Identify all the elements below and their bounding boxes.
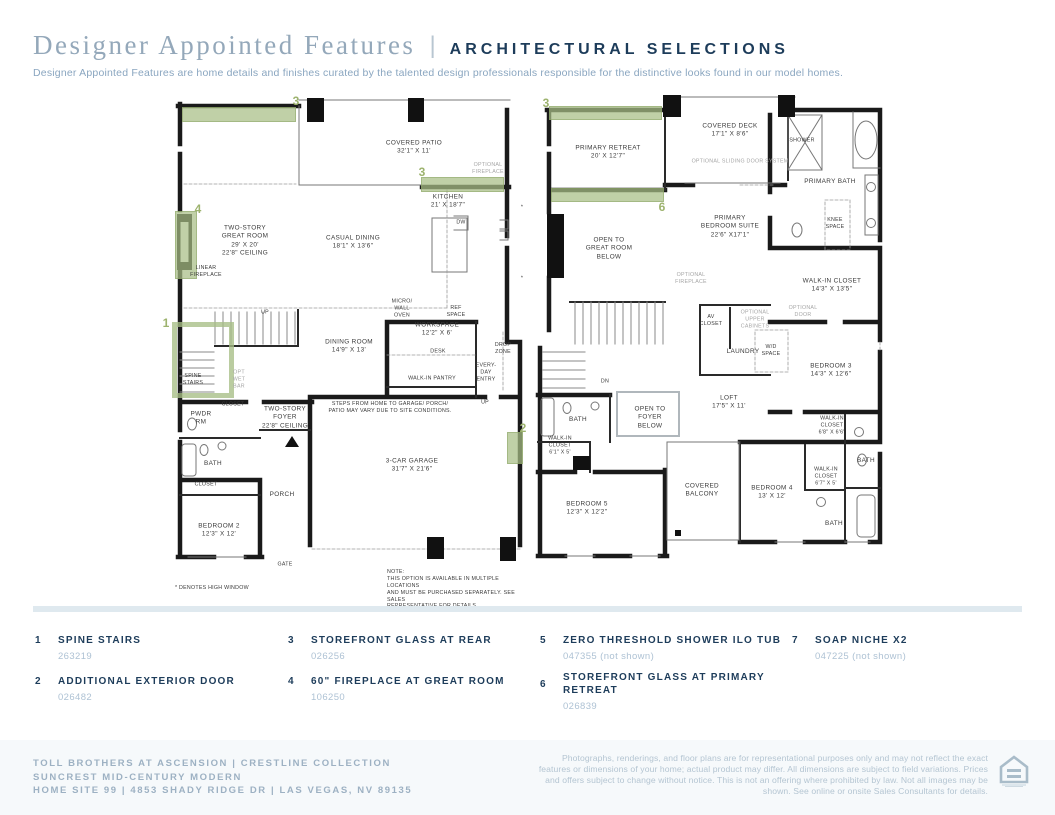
legend-title: ADDITIONAL EXTERIOR DOOR [58,675,235,688]
room-label: LAUNDRY [727,348,760,356]
room-label: PORCH [270,491,295,499]
room-label: SPINE STAIRS [183,373,203,387]
legend-item: 3 STOREFRONT GLASS AT REAR 026256 [288,634,492,662]
legend-code: 047225 (not shown) [815,651,908,662]
community-info: TOLL BROTHERS AT ASCENSION | CRESTLINE C… [33,757,412,798]
legend-number: 4 [288,675,307,703]
legend-title: STOREFRONT GLASS AT REAR [311,634,492,647]
room-label: OPTIONAL SLIDING DOOR SYSTEM [692,159,789,166]
room-label: COVERED DECK 17'1" X 8'6" [702,123,757,140]
room-label: DINING ROOM 14'9" X 13' [325,339,373,356]
callout-number: 3 [419,165,426,179]
legend-item: 1 SPINE STAIRS 263219 [35,634,141,662]
room-label: WALK-IN CLOSET 6'7" X 5' [814,467,838,488]
room-label: UP [261,310,269,317]
room-label: WALK-IN CLOSET 6'8" X 6'6" [819,416,846,437]
highlight-storefront-rear-kitchen [422,178,503,191]
room-label: LINEAR FIREPLACE [190,265,222,279]
room-label: WALK-IN PANTRY [408,376,456,383]
legend-item: 6 STOREFRONT GLASS AT PRIMARY RETREAT 02… [540,671,765,712]
room-label: WORKSPACE 12'2" X 6' [415,322,459,339]
room-label: OPTIONAL DOOR [789,305,818,319]
legend-number: 6 [540,671,559,712]
callout-number: 3 [293,94,300,108]
room-label: OPTIONAL FIREPLACE [472,162,504,176]
room-label: BEDROOM 5 12'3" X 12'2" [566,501,608,518]
room-label: OPEN TO FOYER BELOW [635,406,666,431]
plan-note: NOTE: THIS OPTION IS AVAILABLE IN MULTIP… [387,569,530,610]
equal-housing-logo [998,755,1030,787]
room-label: OPT WET BAR [233,370,246,391]
room-label: MICRO/ WALL OVEN [392,299,413,320]
legend-number: 5 [540,634,559,662]
room-label: PRIMARY BEDROOM SUITE 22'6" X17'1" [701,215,759,240]
room-label: SHOWER [789,138,814,145]
callout-number: 1 [163,316,170,330]
callout-number: 3 [543,96,550,110]
room-label: DW [456,220,465,227]
highlight-storefront-rear-retreat [550,107,661,119]
room-label: DESK [430,349,445,356]
legend-item: 5 ZERO THRESHOLD SHOWER ILO TUB 047355 (… [540,634,781,662]
room-label: EVERY- DAY ENTRY [476,363,497,384]
room-label: TWO-STORY FOYER 22'8" CEILING [262,406,308,431]
legend-title: STOREFRONT GLASS AT PRIMARY RETREAT [563,671,765,697]
second-floor-plan: 3 6 PRIMARY RETREAT 20' X 12'7" COVERED … [535,90,895,595]
legend-code: 047355 (not shown) [563,651,781,662]
footer-disclaimer: Photographs, renderings, and floor plans… [530,753,988,797]
first-floor-plan: 3 3 4 1 2 COVERED PATIO 32'1" X 11' OPTI… [158,90,530,605]
legend-number: 7 [792,634,811,662]
room-label: BEDROOM 3 14'3" X 12'6" [810,363,852,380]
room-label: CLOSET [195,482,218,489]
page-title: Designer Appointed Features [33,30,415,61]
room-label: DROP ZONE [495,342,511,356]
legend-number: 1 [35,634,54,662]
high-window-marker: * [521,205,523,212]
title-separator: | [429,32,435,60]
room-label: COVERED PATIO 32'1" X 11' [386,140,442,157]
plan-footnote: * DENOTES HIGH WINDOW [175,585,249,592]
legend-number: 2 [35,675,54,703]
room-label: CLOSET [222,402,245,409]
room-label: DN [601,379,609,386]
legend-title: 60" FIREPLACE AT GREAT ROOM [311,675,505,688]
callout-number: 2 [520,421,527,435]
room-label: BATH [857,457,875,465]
legend-code: 026839 [563,701,765,712]
room-label: COVERED BALCONY [685,483,719,500]
room-label: W/D SPACE [762,344,781,358]
page-header: Designer Appointed Features | ARCHITECTU… [33,30,1023,79]
room-label: KNEE SPACE [826,217,845,231]
room-label: OPTIONAL UPPER CABINETS [741,310,770,331]
room-label: BATH [204,460,222,468]
room-label: TWO-STORY GREAT ROOM 29' X 20' 22'8" CEI… [222,224,269,257]
room-label: BEDROOM 2 12'3" X 12' [198,523,240,540]
room-label: PRIMARY RETREAT 20' X 12'7" [575,145,640,162]
page-description: Designer Appointed Features are home det… [33,67,1023,79]
legend-item: 4 60" FIREPLACE AT GREAT ROOM 106250 [288,675,505,703]
legend-title: SOAP NICHE X2 [815,634,908,647]
room-label: WALK-IN CLOSET 6'1" X 5' [548,436,572,457]
highlight-additional-exterior-door [508,433,522,463]
room-label: AV CLOSET [700,314,723,328]
room-label: KITCHEN 21' X 18'7" [431,194,465,211]
room-label: BEDROOM 4 13' X 12' [751,485,793,502]
page-tagline: ARCHITECTURAL SELECTIONS [450,41,789,59]
section-divider [33,606,1022,612]
room-label: 3-CAR GARAGE 31'7" X 21'6" [386,458,439,475]
room-label: BATH [569,416,587,424]
callout-number: 4 [195,202,202,216]
legend-number: 3 [288,634,307,662]
legend-code: 106250 [311,692,505,703]
room-label: PRIMARY BATH [804,178,855,186]
room-label: CASUAL DINING 18'1" X 13'6" [326,235,380,252]
high-window-marker: * [521,276,523,283]
room-label: WALK-IN CLOSET 14'3" X 13'5" [803,278,862,295]
legend-item: 7 SOAP NICHE X2 047225 (not shown) [792,634,908,662]
legend-title: SPINE STAIRS [58,634,141,647]
room-label: BATH [825,520,843,528]
room-label: REF SPACE [447,305,466,319]
room-label: STEPS FROM HOME TO GARAGE/ PORCH/ PATIO … [328,401,451,415]
legend-code: 026256 [311,651,492,662]
legend-code: 026482 [58,692,235,703]
room-label: GATE [277,562,292,569]
room-label: OPTIONAL FIREPLACE [675,272,707,286]
room-label: UP [481,400,489,407]
legend-title: ZERO THRESHOLD SHOWER ILO TUB [563,634,781,647]
callout-number: 6 [659,200,666,214]
highlight-storefront-primary-retreat [552,189,663,201]
room-label: LOFT 17'5" X 11' [712,395,746,412]
room-label: OPEN TO GREAT ROOM BELOW [586,237,633,262]
highlight-storefront-rear-left [183,108,295,121]
legend-item: 2 ADDITIONAL EXTERIOR DOOR 026482 [35,675,235,703]
room-label: PWDR RM [191,411,212,428]
legend-code: 263219 [58,651,141,662]
